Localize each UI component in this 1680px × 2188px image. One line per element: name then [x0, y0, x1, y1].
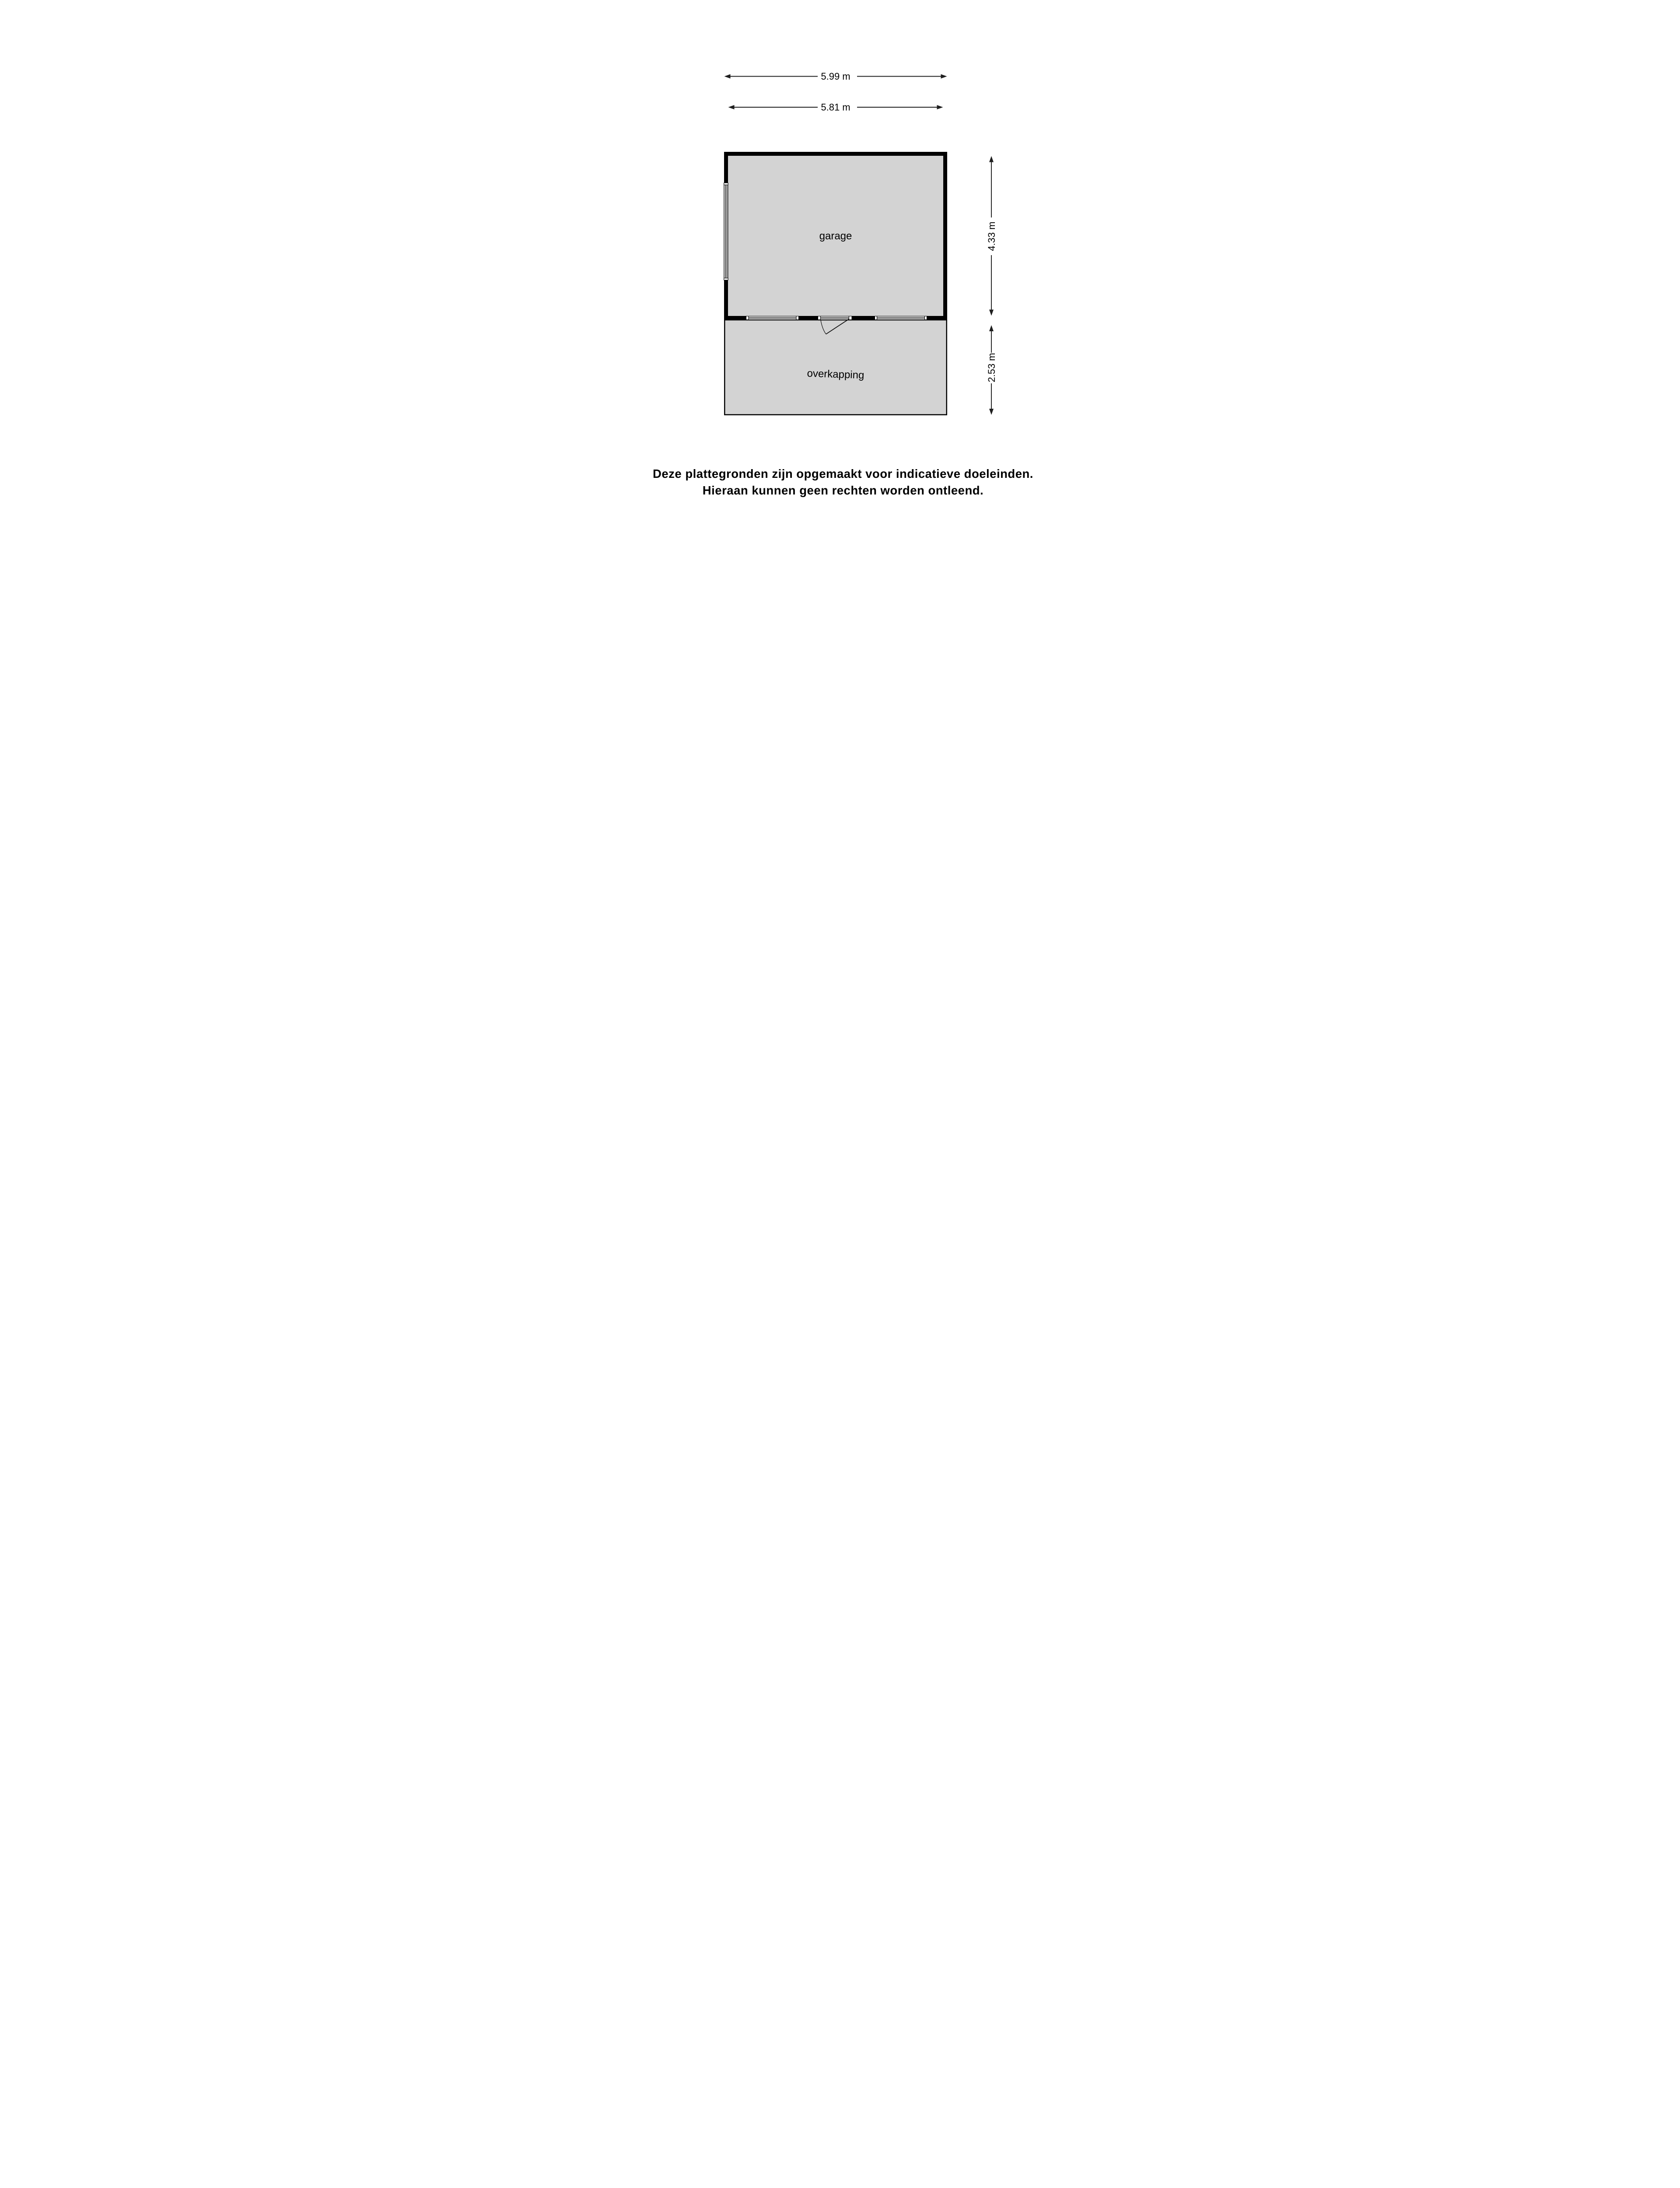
- dim-label-outer-width: 5.99 m: [821, 71, 850, 82]
- dimension-garage-depth: 4.33 m: [986, 156, 997, 316]
- arrowhead-right-icon: [941, 74, 947, 79]
- bottom-wall-window-left: [746, 316, 799, 319]
- left-wall-window: [724, 183, 728, 280]
- dim-label-overkapping-depth: 2.53 m: [986, 353, 997, 382]
- dimension-outer-width: 5.99 m: [724, 71, 947, 82]
- dim-label-garage-depth: 4.33 m: [986, 221, 997, 251]
- door-opening: [818, 316, 852, 319]
- window-opening: [875, 316, 927, 319]
- arrowhead-down-icon: [989, 409, 994, 415]
- garage-label: garage: [819, 230, 852, 242]
- arrowhead-up-icon: [989, 325, 994, 331]
- disclaimer-line-1: Deze plattegronden zijn opgemaakt voor i…: [653, 467, 1033, 480]
- disclaimer-line-2: Hieraan kunnen geen rechten worden ontle…: [703, 484, 983, 497]
- bottom-wall-window-right: [875, 316, 927, 319]
- window-opening: [746, 316, 799, 319]
- arrowhead-right-icon: [937, 105, 943, 109]
- overkapping-room: [724, 320, 947, 415]
- dimension-overkapping-depth: 2.53 m: [986, 325, 997, 415]
- dimension-inner-width: 5.81 m: [728, 102, 943, 113]
- overkapping-label: overkapping: [807, 368, 864, 382]
- floorplan-drawing: 5.99 m 5.81 m 4.33 m 2.53 m: [630, 0, 1050, 560]
- floorplan-page: 5.99 m 5.81 m 4.33 m 2.53 m: [630, 0, 1050, 560]
- dim-label-inner-width: 5.81 m: [821, 102, 850, 113]
- arrowhead-down-icon: [989, 310, 994, 316]
- disclaimer: Deze plattegronden zijn opgemaakt voor i…: [653, 467, 1033, 497]
